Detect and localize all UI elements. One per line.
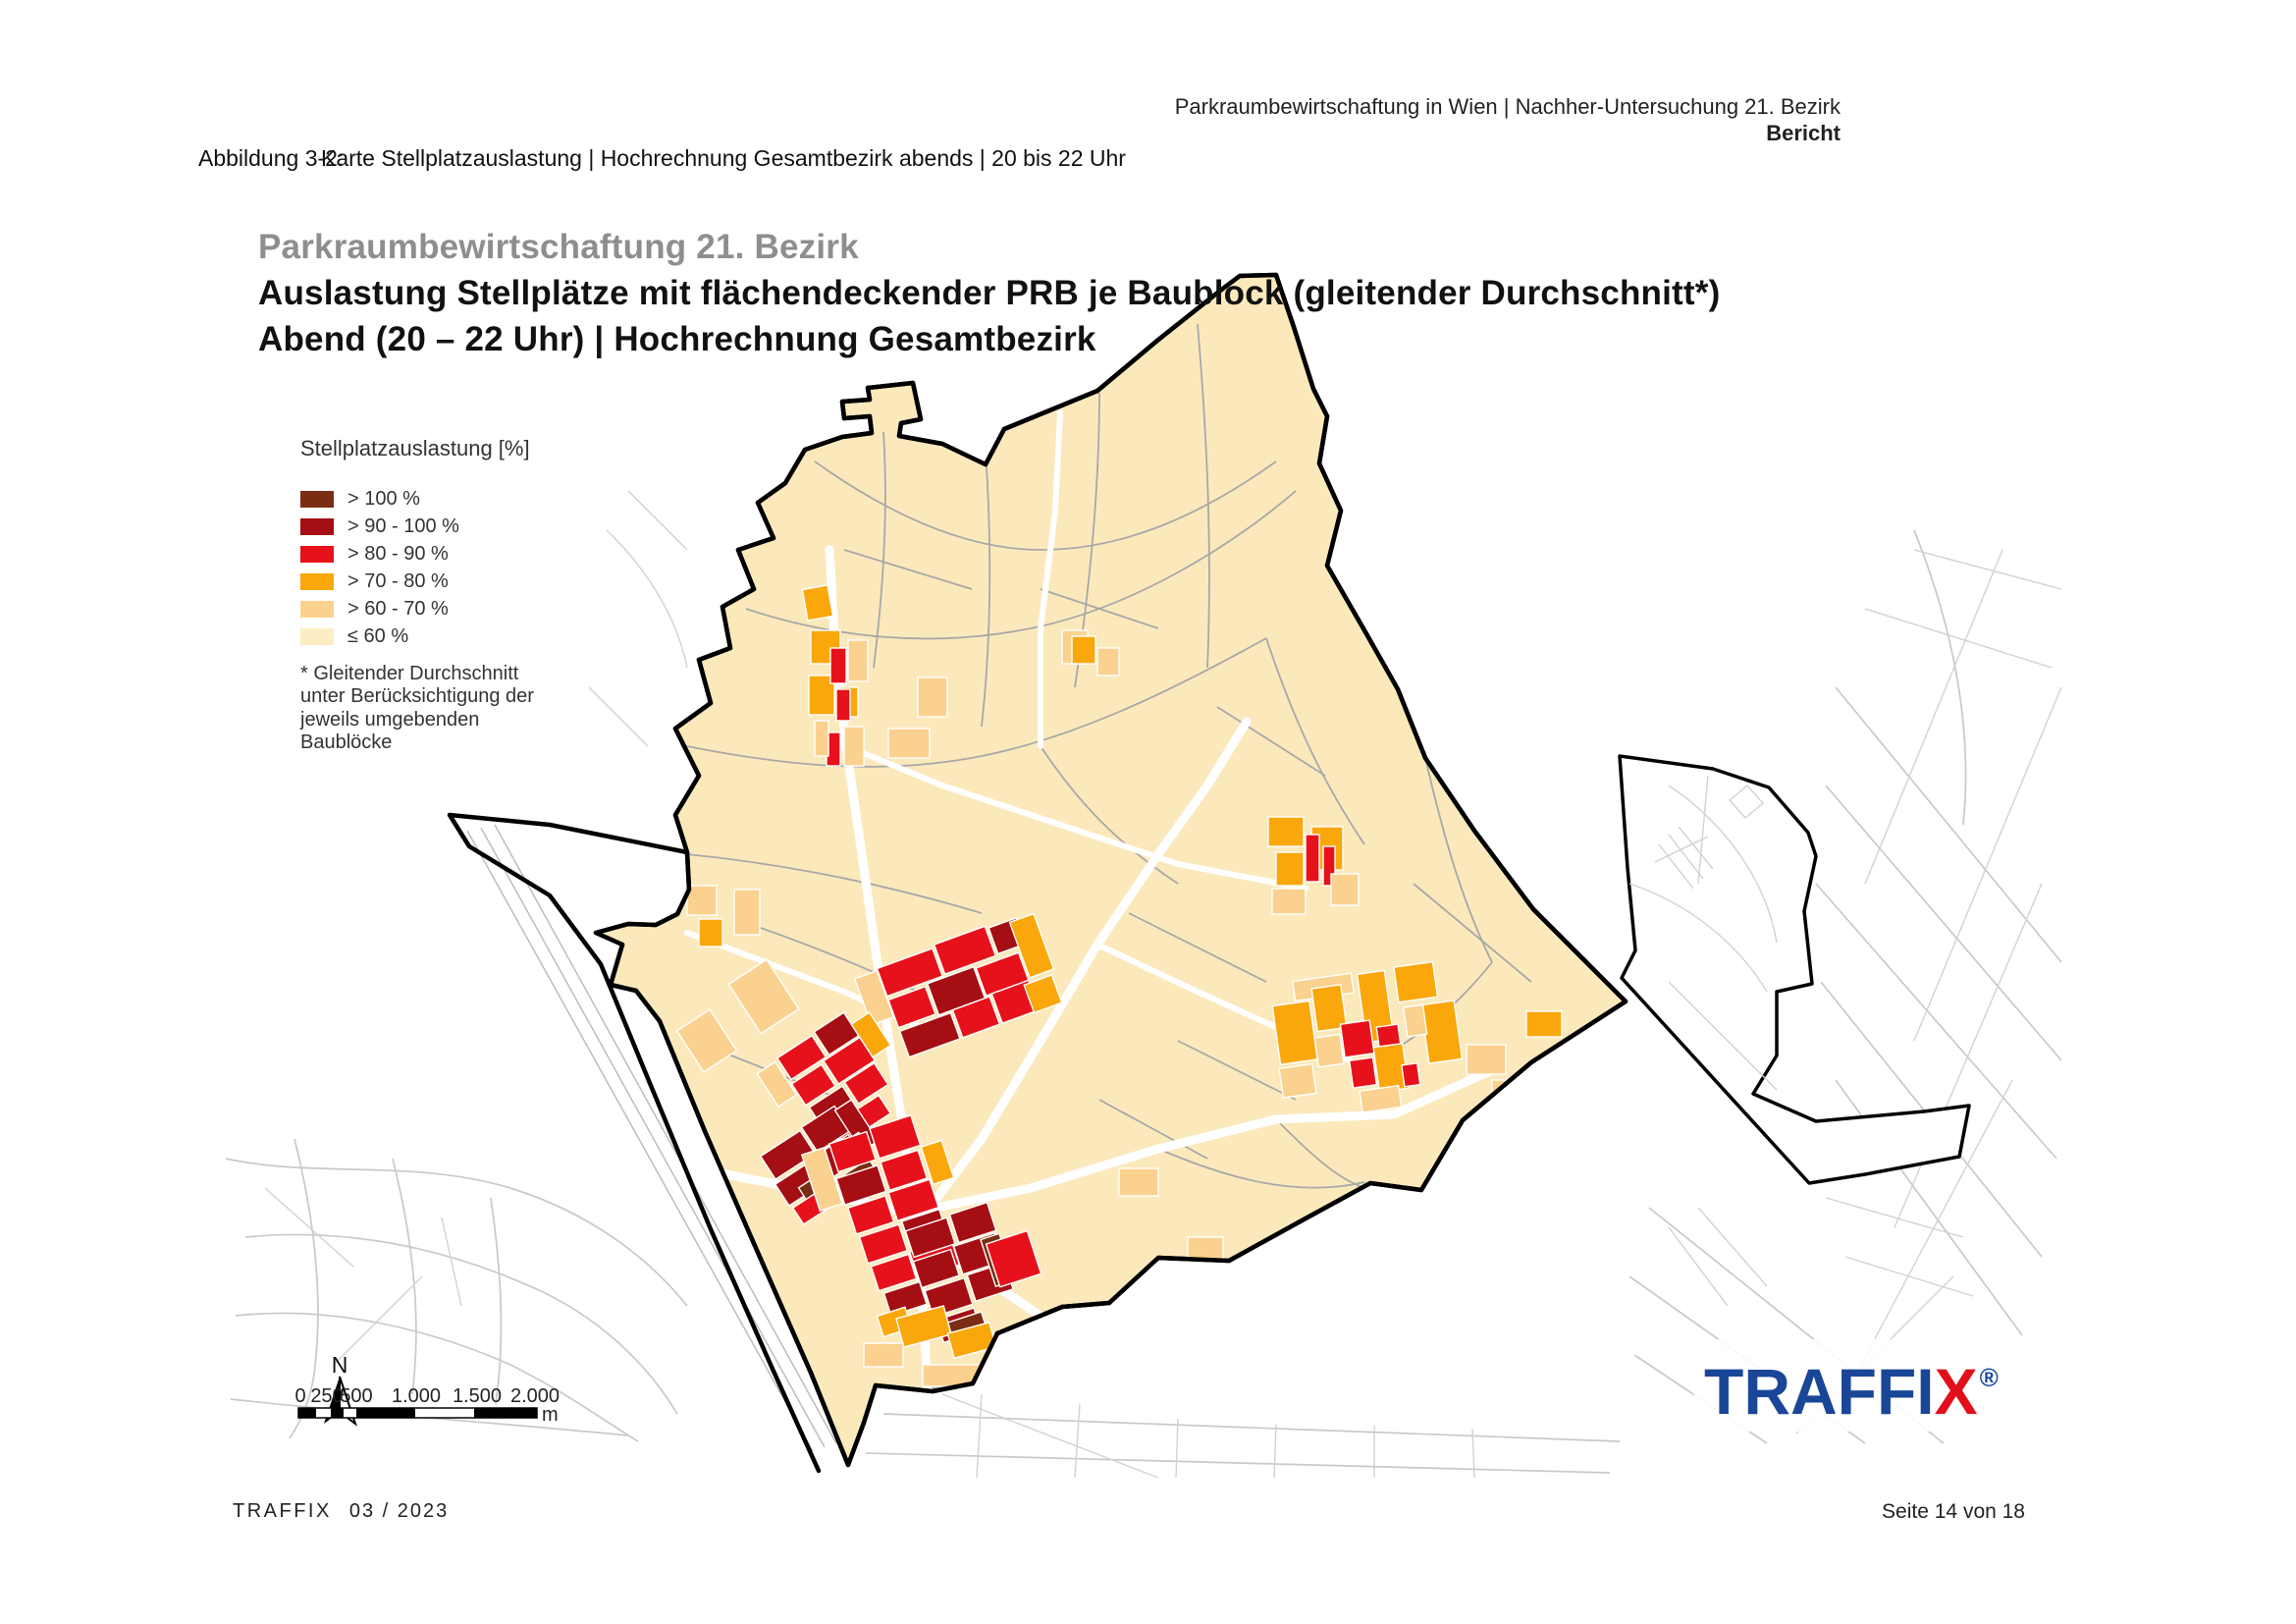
scale-tick-0: 0 — [294, 1385, 305, 1407]
footer-date: 03 / 2023 — [349, 1500, 449, 1522]
traffix-logo: TRAFFIX® — [1694, 1339, 2008, 1432]
legend-item: > 60 - 70 % — [300, 601, 595, 618]
legend-item: > 100 % — [300, 491, 595, 508]
registered-trademark-icon: ® — [1980, 1363, 1999, 1392]
legend-swatch-gt100 — [300, 491, 334, 508]
legend-label: > 100 % — [347, 488, 420, 511]
map-title-subtitle: Parkraumbewirtschaftung 21. Bezirk — [258, 224, 1720, 270]
map-title-line2: Abend (20 – 22 Uhr) | Hochrechnung Gesam… — [258, 316, 1720, 362]
legend-label: ≤ 60 % — [347, 625, 408, 648]
legend-label: > 60 - 70 % — [347, 598, 449, 621]
footnote-line: Baublöcke — [300, 731, 595, 754]
traffix-logo-x: X — [1935, 1355, 1978, 1428]
map-title-block: Parkraumbewirtschaftung 21. Bezirk Ausla… — [258, 224, 1720, 362]
footnote-line: * Gleitender Durchschnitt — [300, 663, 595, 685]
report-page: N 0 250 500 1.000 1.500 2.000 m Parkraum… — [0, 0, 2296, 1624]
legend-swatch-70-80 — [300, 573, 334, 590]
footer-page-number: Seite 14 von 18 — [1882, 1500, 2025, 1524]
legend-swatch-90-100 — [300, 518, 334, 535]
scale-bar: 0 250 500 1.000 1.500 2.000 m — [294, 1385, 560, 1426]
legend-label: > 90 - 100 % — [347, 515, 459, 538]
map-legend: Stellplatzauslastung [%] > 100 % > 90 - … — [300, 436, 595, 755]
legend-label: > 70 - 80 % — [347, 570, 449, 593]
legend-label: > 80 - 90 % — [347, 543, 449, 566]
scale-tick-1000: 1.000 — [392, 1385, 441, 1407]
scale-tick-500: 500 — [340, 1385, 372, 1407]
footer-brand: TRAFFIX — [233, 1500, 332, 1522]
north-label: N — [332, 1352, 348, 1378]
figure-caption-text: Karte Stellplatzauslastung | Hochrechnun… — [321, 145, 1126, 172]
map-title-line1: Auslastung Stellplätze mit flächendecken… — [258, 270, 1720, 316]
page-header: Parkraumbewirtschaftung in Wien | Nachhe… — [1175, 93, 1841, 146]
legend-item: > 70 - 80 % — [300, 573, 595, 590]
footnote-line: unter Berücksichtigung der — [300, 685, 595, 708]
footnote-line: jeweils umgebenden — [300, 709, 595, 731]
legend-item: ≤ 60 % — [300, 628, 595, 645]
legend-title: Stellplatzauslastung [%] — [300, 436, 595, 461]
scale-tick-250: 250 — [310, 1385, 343, 1407]
footer-left: TRAFFIX03 / 2023 — [233, 1500, 449, 1523]
traffix-logo-blue: TRAFFI — [1704, 1355, 1935, 1428]
scale-tick-1500: 1.500 — [453, 1385, 502, 1407]
header-line1: Parkraumbewirtschaftung in Wien | Nachhe… — [1175, 93, 1841, 120]
figure-caption: Abbildung 3-2: Karte Stellplatzauslastun… — [198, 145, 344, 172]
legend-swatch-le60 — [300, 628, 334, 645]
legend-swatch-80-90 — [300, 546, 334, 563]
legend-item: > 80 - 90 % — [300, 546, 595, 563]
legend-footnote: * Gleitender Durchschnitt unter Berücksi… — [300, 663, 595, 755]
legend-swatch-60-70 — [300, 601, 334, 618]
legend-item: > 90 - 100 % — [300, 518, 595, 535]
header-line2: Bericht — [1175, 120, 1841, 146]
district-east-region — [1620, 756, 1969, 1183]
scale-unit: m — [542, 1404, 559, 1426]
